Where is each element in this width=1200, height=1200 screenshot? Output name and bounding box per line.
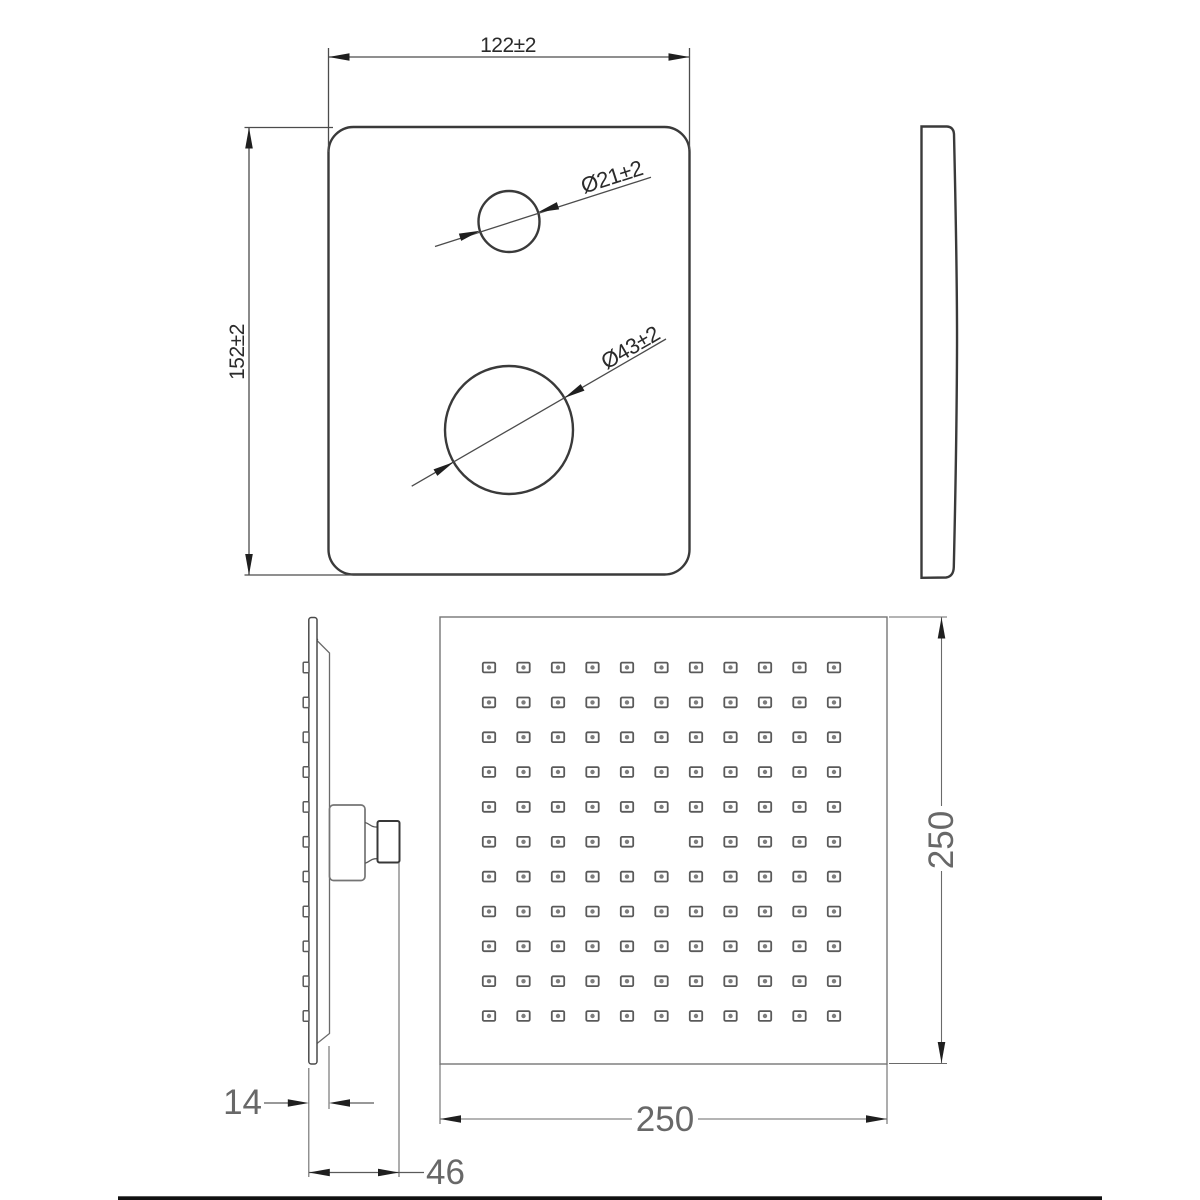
svg-text:122±2: 122±2 [480,34,536,57]
svg-text:14: 14 [223,1083,262,1122]
svg-text:46: 46 [426,1153,465,1192]
svg-text:250: 250 [922,811,961,869]
svg-text:152±2: 152±2 [226,324,249,380]
svg-text:250: 250 [636,1100,694,1139]
